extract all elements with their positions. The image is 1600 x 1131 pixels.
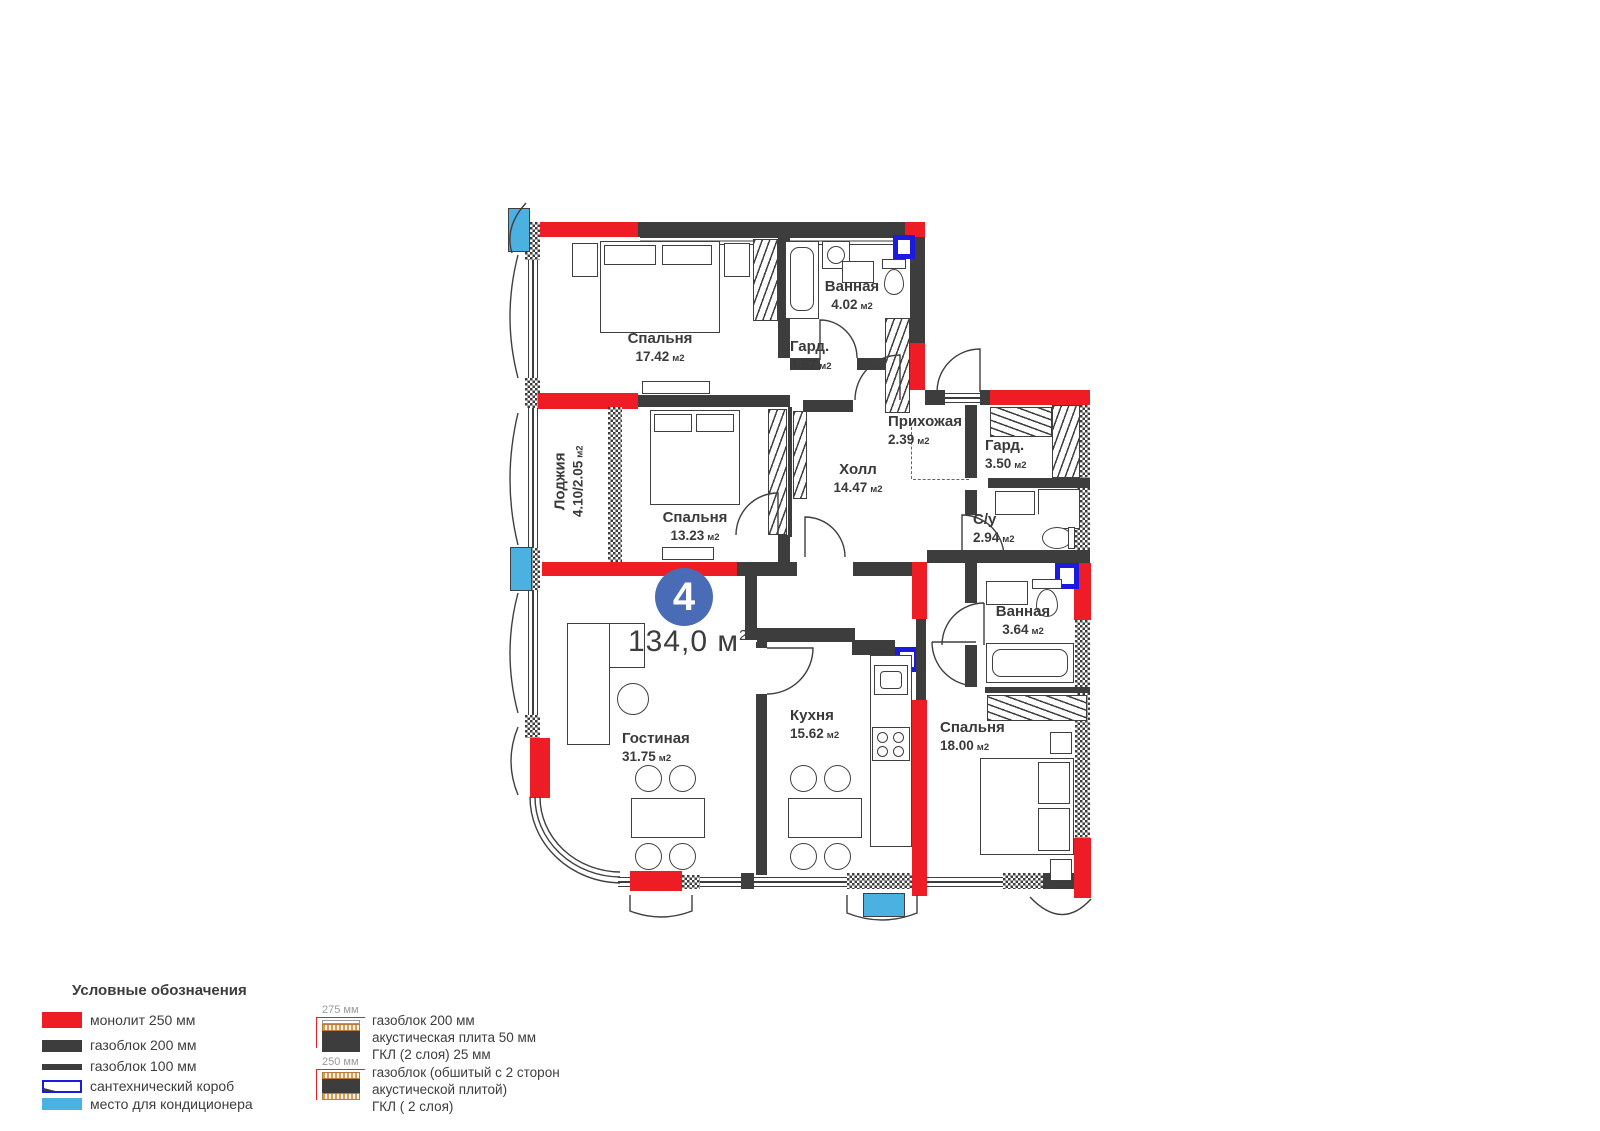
entrance-threshold: [945, 393, 980, 403]
wall-segment: [1003, 873, 1043, 889]
room-label-kitchen: Кухня 15.62м2: [790, 707, 876, 744]
wall-segment: [980, 390, 990, 405]
wall-segment: [778, 535, 790, 562]
monolith-block: [990, 390, 1090, 405]
wall-type-description: газоблок (обшитый с 2 сторон акустическо…: [372, 1064, 560, 1115]
bathtub-inner: [992, 649, 1068, 677]
layer-acoustic: [322, 1024, 360, 1031]
layer-acoustic: [322, 1072, 360, 1079]
legend-label: место для кондиционера: [90, 1096, 253, 1112]
pillow: [696, 414, 734, 432]
room-label-living-room: Гостиная 31.75м2: [622, 730, 714, 767]
sink: [986, 581, 1028, 605]
wall-type-dimension: 275 мм: [322, 1004, 359, 1016]
monolith-block: [912, 700, 927, 896]
window: [917, 877, 1003, 887]
wall-segment: [803, 400, 853, 412]
coffee-table: [617, 683, 649, 715]
wardrobe-hatch: [885, 318, 910, 413]
wall-segment: [741, 873, 754, 889]
wall-segment: [965, 563, 977, 603]
wall-type-dimension: 250 мм: [322, 1056, 359, 1068]
stove-burner: [893, 732, 904, 743]
chair: [824, 765, 851, 792]
monolith-block: [538, 222, 638, 237]
legend-swatch-plumbing-box: [42, 1080, 82, 1093]
nightstand: [1050, 859, 1072, 881]
wardrobe-hatch: [768, 409, 787, 535]
wall-segment: [925, 390, 945, 405]
monolith-block: [530, 738, 550, 798]
stove-burner: [877, 746, 888, 757]
floor-plan: Спальня 17.42м2 Ванная 4.02м2 Гард. 4.97…: [490, 195, 1105, 935]
ac-unit-place: [863, 893, 905, 917]
total-area-unit: м2: [717, 625, 748, 658]
wall-segment: [682, 875, 700, 889]
layer-gasblock: [322, 1031, 360, 1052]
floor-plan-page: Спальня 17.42м2 Ванная 4.02м2 Гард. 4.97…: [0, 0, 1600, 1131]
room-label-hall: Холл 14.47м2: [818, 461, 898, 498]
room-label-wardrobe-1: Гард. 4.97м2: [790, 338, 860, 375]
wall-segment: [985, 687, 1090, 693]
plumbing-box: [893, 235, 915, 259]
wardrobe-hatch: [753, 239, 778, 321]
wardrobe-hatch: [793, 411, 807, 499]
dining-table: [788, 798, 862, 838]
legend-swatch-monolith: [42, 1012, 82, 1028]
window: [528, 408, 538, 548]
chair: [824, 843, 851, 870]
toilet-tank: [882, 259, 906, 269]
wardrobe-hatch: [987, 695, 1087, 721]
wall-segment: [638, 395, 790, 407]
legend-title: Условные обозначения: [72, 982, 247, 999]
dresser: [642, 381, 710, 394]
wall-segment: [756, 642, 767, 648]
total-area: 134,0 м2: [628, 625, 748, 659]
stove: [872, 727, 910, 761]
monolith-block: [910, 343, 925, 390]
stove-burner: [877, 732, 888, 743]
shower: [1038, 489, 1080, 529]
wall-segment: [757, 628, 855, 642]
room-label-bedroom-2: Спальня 13.23м2: [650, 509, 740, 546]
legend-swatch-gasblock-100: [42, 1064, 82, 1070]
chair: [790, 765, 817, 792]
layer-acoustic: [322, 1093, 360, 1100]
room-label-bedroom-3: Спальня 18.00м2: [940, 719, 1032, 756]
wall-segment: [847, 873, 917, 889]
room-label-bathroom-1: Ванная 4.02м2: [810, 278, 894, 315]
room-label-wc: С/у 2.94м2: [973, 511, 1043, 548]
wall-segment: [988, 478, 1090, 488]
chair: [790, 843, 817, 870]
nightstand: [572, 243, 598, 277]
dining-table: [631, 798, 705, 838]
legend-label: газоблок 100 мм: [90, 1058, 197, 1074]
pillow: [1038, 808, 1070, 851]
toilet-tank: [1032, 579, 1062, 589]
nightstand: [1050, 732, 1072, 754]
nightstand: [724, 243, 750, 277]
room-label-bedroom-1: Спальня 17.42м2: [605, 330, 715, 367]
wall-segment: [737, 562, 797, 576]
wall-segment: [756, 694, 767, 875]
wall-type-description: газоблок 200 мм акустическая плита 50 мм…: [372, 1012, 536, 1063]
window: [528, 590, 538, 715]
monolith-block: [912, 562, 927, 619]
legend-label: монолит 250 мм: [90, 1012, 195, 1028]
stove-burner: [893, 746, 904, 757]
kitchen-sink-bowl: [880, 671, 902, 689]
legend-label: газоблок 200 мм: [90, 1037, 197, 1053]
pillow: [604, 245, 656, 265]
legend-swatch-ac-place: [42, 1098, 82, 1110]
sofa: [567, 623, 610, 745]
chair: [669, 765, 696, 792]
room-label-bathroom-2: Ванная 3.64м2: [978, 603, 1068, 640]
window: [700, 877, 741, 887]
wall-segment: [525, 715, 540, 738]
wall-segment: [853, 562, 912, 576]
room-label-loggia: Лоджия 4.10/2.05м2: [552, 406, 589, 556]
layer-gasblock: [322, 1079, 360, 1093]
zone-divider-dashed: [913, 479, 969, 480]
ac-unit-place: [508, 208, 530, 252]
chair: [635, 765, 662, 792]
room-label-wardrobe-2: Гард. 3.50м2: [985, 437, 1055, 474]
wall-segment: [965, 645, 977, 687]
chair: [669, 843, 696, 870]
wall-segment: [927, 550, 1090, 563]
apartment-number-badge: 4: [655, 568, 713, 626]
wall-segment: [608, 407, 622, 562]
monolith-block: [542, 562, 737, 576]
monolith-block: [630, 871, 682, 891]
legend-label: сантехнический короб: [90, 1078, 234, 1094]
pillow: [654, 414, 692, 432]
window: [754, 877, 847, 887]
ac-unit-place: [510, 547, 532, 591]
chair: [635, 843, 662, 870]
wardrobe-hatch: [1052, 405, 1080, 478]
wall-segment: [852, 640, 895, 655]
legend-swatch-gasblock-200: [42, 1040, 82, 1052]
pillow: [662, 245, 712, 265]
wardrobe-hatch: [990, 407, 1052, 437]
wall-segment: [788, 407, 792, 537]
toilet-tank: [1068, 527, 1075, 549]
monolith-block: [1074, 838, 1091, 898]
pillow: [1038, 762, 1070, 804]
room-label-hallway: Прихожая 2.39м2: [888, 413, 980, 450]
wall-segment: [916, 619, 926, 700]
window: [528, 260, 538, 378]
dresser: [662, 547, 714, 560]
